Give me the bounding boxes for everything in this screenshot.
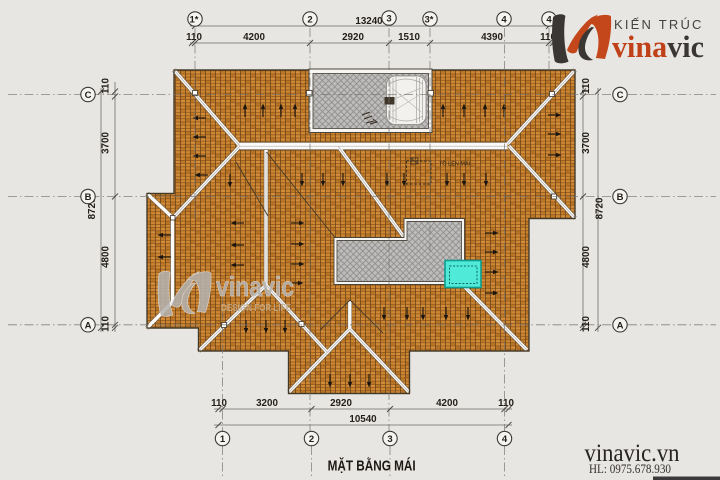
- svg-text:TỒ LÊN MÁI: TỒ LÊN MÁI: [439, 160, 471, 168]
- svg-text:3700: 3700: [101, 132, 112, 154]
- svg-text:4800: 4800: [101, 246, 112, 268]
- svg-text:10540: 10540: [349, 414, 377, 425]
- svg-text:2: 2: [307, 15, 312, 26]
- svg-text:1*: 1*: [190, 15, 199, 26]
- svg-text:4: 4: [546, 15, 552, 26]
- svg-text:4: 4: [502, 434, 508, 445]
- svg-text:3*: 3*: [425, 15, 434, 26]
- svg-text:vinavic: vinavic: [612, 29, 704, 64]
- svg-text:2920: 2920: [342, 32, 364, 43]
- svg-text:2: 2: [309, 434, 314, 445]
- svg-text:110: 110: [581, 78, 592, 94]
- svg-text:110: 110: [186, 32, 202, 43]
- svg-text:1: 1: [220, 434, 226, 445]
- svg-text:4390: 4390: [481, 32, 503, 43]
- svg-text:110: 110: [101, 78, 112, 94]
- svg-text:4200: 4200: [243, 32, 265, 43]
- svg-text:110: 110: [581, 316, 592, 332]
- svg-text:MẶT BẰNG MÁI: MẶT BẰNG MÁI: [328, 457, 416, 475]
- svg-text:110: 110: [498, 398, 514, 409]
- svg-text:13240: 13240: [355, 16, 383, 27]
- svg-text:DESIGN FOR LIFE: DESIGN FOR LIFE: [221, 303, 291, 314]
- svg-text:HL: 0975.678.930: HL: 0975.678.930: [589, 461, 671, 476]
- svg-text:4: 4: [501, 15, 507, 26]
- svg-text:3: 3: [386, 14, 391, 25]
- svg-text:3: 3: [387, 434, 392, 445]
- svg-text:A: A: [85, 320, 92, 331]
- svg-text:vinavic: vinavic: [216, 271, 294, 302]
- svg-text:3700: 3700: [581, 132, 592, 154]
- svg-text:C: C: [85, 90, 92, 101]
- svg-text:A: A: [617, 320, 624, 331]
- svg-text:110: 110: [211, 398, 227, 409]
- svg-text:2920: 2920: [330, 398, 352, 409]
- svg-text:8720: 8720: [595, 197, 606, 219]
- svg-text:110: 110: [101, 316, 112, 332]
- svg-text:1510: 1510: [398, 32, 420, 43]
- svg-text:C: C: [617, 90, 624, 101]
- svg-text:3200: 3200: [256, 398, 278, 409]
- svg-text:4800: 4800: [581, 246, 592, 268]
- svg-text:4200: 4200: [436, 398, 458, 409]
- svg-text:B: B: [617, 192, 624, 203]
- svg-text:B: B: [85, 192, 92, 203]
